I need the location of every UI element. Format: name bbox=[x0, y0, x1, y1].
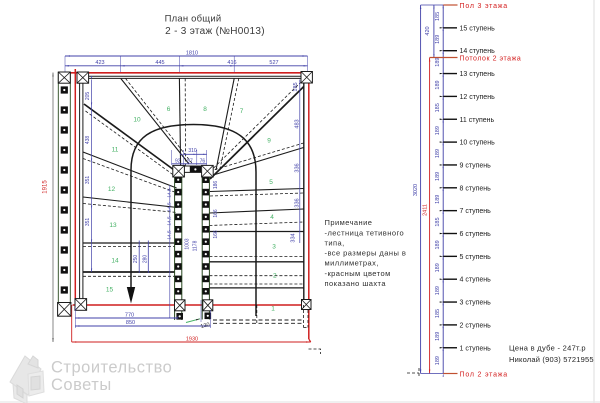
svg-text:185: 185 bbox=[435, 103, 441, 112]
svg-text:189: 189 bbox=[435, 35, 441, 44]
svg-text:8 ступень: 8 ступень bbox=[460, 185, 492, 192]
svg-text:11 ступень: 11 ступень bbox=[460, 117, 495, 124]
svg-text:250: 250 bbox=[133, 255, 139, 264]
svg-text:5 ступень: 5 ступень bbox=[460, 254, 492, 261]
svg-text:483: 483 bbox=[294, 119, 300, 128]
svg-text:185: 185 bbox=[293, 82, 299, 91]
svg-text:423: 423 bbox=[95, 60, 104, 66]
svg-text:189: 189 bbox=[435, 240, 441, 249]
svg-text:334: 334 bbox=[291, 233, 297, 242]
svg-text:Советы: Советы bbox=[51, 376, 112, 394]
svg-text:2 ступень: 2 ступень bbox=[460, 322, 492, 329]
svg-text:6: 6 bbox=[167, 106, 171, 113]
svg-text:445: 445 bbox=[155, 60, 164, 66]
svg-text:850: 850 bbox=[126, 320, 135, 326]
svg-text:-красным цветом: -красным цветом bbox=[325, 269, 391, 278]
svg-text:189: 189 bbox=[435, 356, 441, 365]
svg-text:189: 189 bbox=[435, 149, 441, 158]
svg-text:Пол 3 этажа: Пол 3 этажа bbox=[460, 3, 508, 10]
svg-text:3 ступень: 3 ступень bbox=[460, 300, 492, 307]
svg-text:3020: 3020 bbox=[413, 184, 419, 196]
svg-text:310: 310 bbox=[188, 148, 197, 154]
svg-text:миллиметрах,: миллиметрах, bbox=[325, 259, 379, 268]
svg-text:420: 420 bbox=[425, 26, 431, 35]
svg-text:4 ступень: 4 ступень bbox=[460, 277, 492, 284]
svg-text:-лестница тетивного: -лестница тетивного bbox=[325, 229, 405, 238]
svg-text:Пол 2 этажа: Пол 2 этажа bbox=[460, 372, 508, 379]
svg-text:5: 5 bbox=[269, 179, 273, 186]
svg-text:-все размеры даны в: -все размеры даны в bbox=[325, 249, 407, 258]
svg-text:189: 189 bbox=[435, 332, 441, 341]
svg-text:12 ступень: 12 ступень bbox=[460, 94, 496, 101]
svg-text:Потолок 2 этажа: Потолок 2 этажа bbox=[460, 56, 522, 63]
svg-text:10: 10 bbox=[133, 117, 141, 124]
svg-text:Николай (903) 5721955: Николай (903) 5721955 bbox=[509, 355, 594, 364]
svg-text:185: 185 bbox=[435, 217, 441, 226]
svg-text:Строительство: Строительство bbox=[51, 359, 172, 377]
svg-text:9: 9 bbox=[267, 138, 271, 145]
svg-text:2 - 3 этаж (№Н0013): 2 - 3 этаж (№Н0013) bbox=[165, 26, 265, 37]
svg-text:15 ступень: 15 ступень bbox=[460, 25, 496, 32]
svg-text:8: 8 bbox=[203, 106, 207, 113]
svg-text:14,5: 14,5 bbox=[166, 188, 172, 198]
svg-text:189: 189 bbox=[435, 195, 441, 204]
svg-text:3: 3 bbox=[272, 244, 276, 251]
svg-text:План общий: План общий bbox=[165, 14, 222, 25]
svg-text:438: 438 bbox=[85, 136, 91, 145]
svg-text:15: 15 bbox=[106, 287, 114, 294]
svg-text:9 ступень: 9 ступень bbox=[460, 162, 492, 169]
svg-text:4: 4 bbox=[270, 214, 274, 221]
svg-text:336: 336 bbox=[294, 198, 300, 207]
svg-text:186: 186 bbox=[213, 181, 219, 190]
svg-text:2: 2 bbox=[273, 273, 277, 280]
svg-text:показано шахта: показано шахта bbox=[325, 279, 387, 288]
svg-text:1915: 1915 bbox=[43, 180, 49, 194]
svg-text:10 ступень: 10 ступень bbox=[460, 140, 496, 147]
svg-text:280: 280 bbox=[142, 255, 148, 264]
svg-text:166: 166 bbox=[213, 209, 219, 218]
svg-text:189: 189 bbox=[435, 172, 441, 181]
svg-text:Примечание: Примечание bbox=[325, 218, 373, 227]
svg-text:189: 189 bbox=[435, 80, 441, 89]
svg-text:13: 13 bbox=[109, 222, 117, 229]
svg-text:189: 189 bbox=[435, 58, 441, 67]
svg-text:189: 189 bbox=[435, 263, 441, 272]
svg-text:1930: 1930 bbox=[186, 336, 198, 342]
svg-text:Цена в дубе - 247т.р: Цена в дубе - 247т.р bbox=[509, 344, 586, 353]
svg-text:7: 7 bbox=[240, 108, 244, 115]
svg-text:2411: 2411 bbox=[423, 204, 429, 216]
svg-text:416: 416 bbox=[227, 60, 236, 66]
svg-text:14 ступень: 14 ступень bbox=[460, 48, 496, 55]
svg-text:13 ступень: 13 ступень bbox=[460, 71, 496, 78]
svg-text:185: 185 bbox=[435, 309, 441, 318]
svg-text:205: 205 bbox=[85, 92, 91, 101]
svg-text:14,5: 14,5 bbox=[166, 216, 172, 226]
svg-text:1810: 1810 bbox=[186, 51, 198, 57]
svg-text:189: 189 bbox=[435, 126, 441, 135]
svg-text:7 ступень: 7 ступень bbox=[460, 208, 492, 215]
svg-text:770: 770 bbox=[125, 312, 134, 318]
svg-text:11: 11 bbox=[112, 147, 119, 154]
svg-text:типа,: типа, bbox=[325, 239, 345, 248]
svg-text:1: 1 bbox=[271, 306, 275, 313]
svg-text:1 ступень: 1 ступень bbox=[460, 345, 492, 352]
svg-text:185: 185 bbox=[435, 12, 441, 21]
svg-text:351: 351 bbox=[85, 176, 91, 185]
svg-text:351: 351 bbox=[85, 218, 91, 227]
svg-text:14,5: 14,5 bbox=[166, 202, 172, 212]
svg-text:189: 189 bbox=[435, 286, 441, 295]
svg-text:1003: 1003 bbox=[185, 238, 191, 249]
svg-text:6 ступень: 6 ступень bbox=[460, 231, 492, 238]
svg-text:12: 12 bbox=[108, 186, 116, 193]
svg-text:527: 527 bbox=[269, 60, 278, 66]
svg-text:14: 14 bbox=[111, 258, 119, 265]
svg-text:1178: 1178 bbox=[193, 240, 199, 251]
svg-text:336: 336 bbox=[294, 163, 300, 172]
svg-text:14,5: 14,5 bbox=[166, 230, 172, 240]
svg-text:166: 166 bbox=[213, 230, 219, 239]
